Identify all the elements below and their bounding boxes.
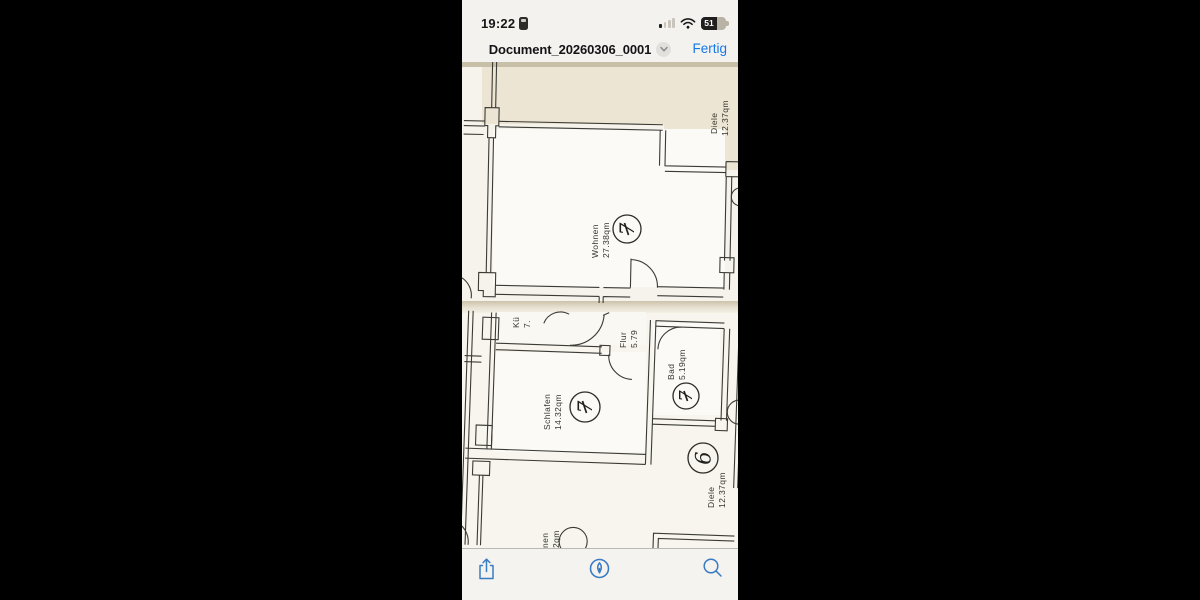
search-icon [702, 557, 724, 579]
status-badge-icon [519, 17, 528, 30]
room-label-partial-bottom: nen 2qm [540, 530, 561, 548]
share-icon [476, 557, 497, 581]
svg-text:12.37qm: 12.37qm [720, 100, 730, 136]
room-label-flur: Flur 5.79 [618, 330, 639, 348]
svg-text:5.19qm: 5.19qm [677, 349, 687, 380]
battery-icon: 51 [701, 17, 726, 30]
phone-screen: 19:22 51 Document_20260306_0001 [462, 0, 738, 600]
search-button[interactable] [698, 554, 728, 585]
battery-percent: 51 [701, 17, 717, 30]
document-title: Document_20260306_0001 [489, 42, 652, 57]
svg-text:Diele: Diele [706, 487, 716, 508]
nav-bar: Document_20260306_0001 Fertig [462, 36, 738, 62]
svg-text:Kü: Kü [511, 317, 521, 328]
svg-text:Wohnen: Wohnen [590, 224, 600, 258]
svg-text:2qm: 2qm [551, 530, 561, 548]
document-view[interactable]: Diele 12.37qm Wohnen 27.38qm Kü 7. Flur … [462, 62, 738, 548]
floor-plan-canvas: Diele 12.37qm Wohnen 27.38qm Kü 7. Flur … [462, 62, 738, 548]
scan-background [462, 62, 738, 548]
wifi-icon [680, 17, 696, 29]
svg-text:27.38qm: 27.38qm [601, 222, 611, 258]
done-button[interactable]: Fertig [692, 39, 727, 58]
svg-text:5.79: 5.79 [629, 330, 639, 348]
share-button[interactable] [472, 554, 501, 587]
svg-text:Diele: Diele [709, 113, 719, 134]
svg-text:nen: nen [540, 533, 550, 548]
status-bar: 19:22 51 [462, 0, 738, 36]
room-label-schlafen: Schlafen 14.32qm [542, 394, 563, 430]
markup-button[interactable] [584, 554, 615, 586]
svg-text:Schlafen: Schlafen [542, 394, 552, 430]
svg-text:12.37qm: 12.37qm [717, 472, 727, 508]
cellular-signal-icon [659, 18, 675, 28]
markup-icon [588, 557, 611, 580]
bottom-toolbar [462, 548, 738, 600]
svg-text:6: 6 [692, 451, 716, 464]
chevron-down-icon[interactable] [656, 42, 671, 57]
svg-text:7.: 7. [522, 320, 532, 328]
svg-text:Flur: Flur [618, 332, 628, 348]
svg-text:Bad: Bad [666, 364, 676, 380]
svg-text:14.32qm: 14.32qm [553, 394, 563, 430]
status-icons: 51 [659, 17, 726, 30]
document-title-button[interactable]: Document_20260306_0001 [489, 42, 672, 57]
status-time: 19:22 [481, 16, 528, 31]
room-label-wohnen: Wohnen 27.38qm [590, 222, 611, 258]
time-label: 19:22 [481, 16, 515, 31]
